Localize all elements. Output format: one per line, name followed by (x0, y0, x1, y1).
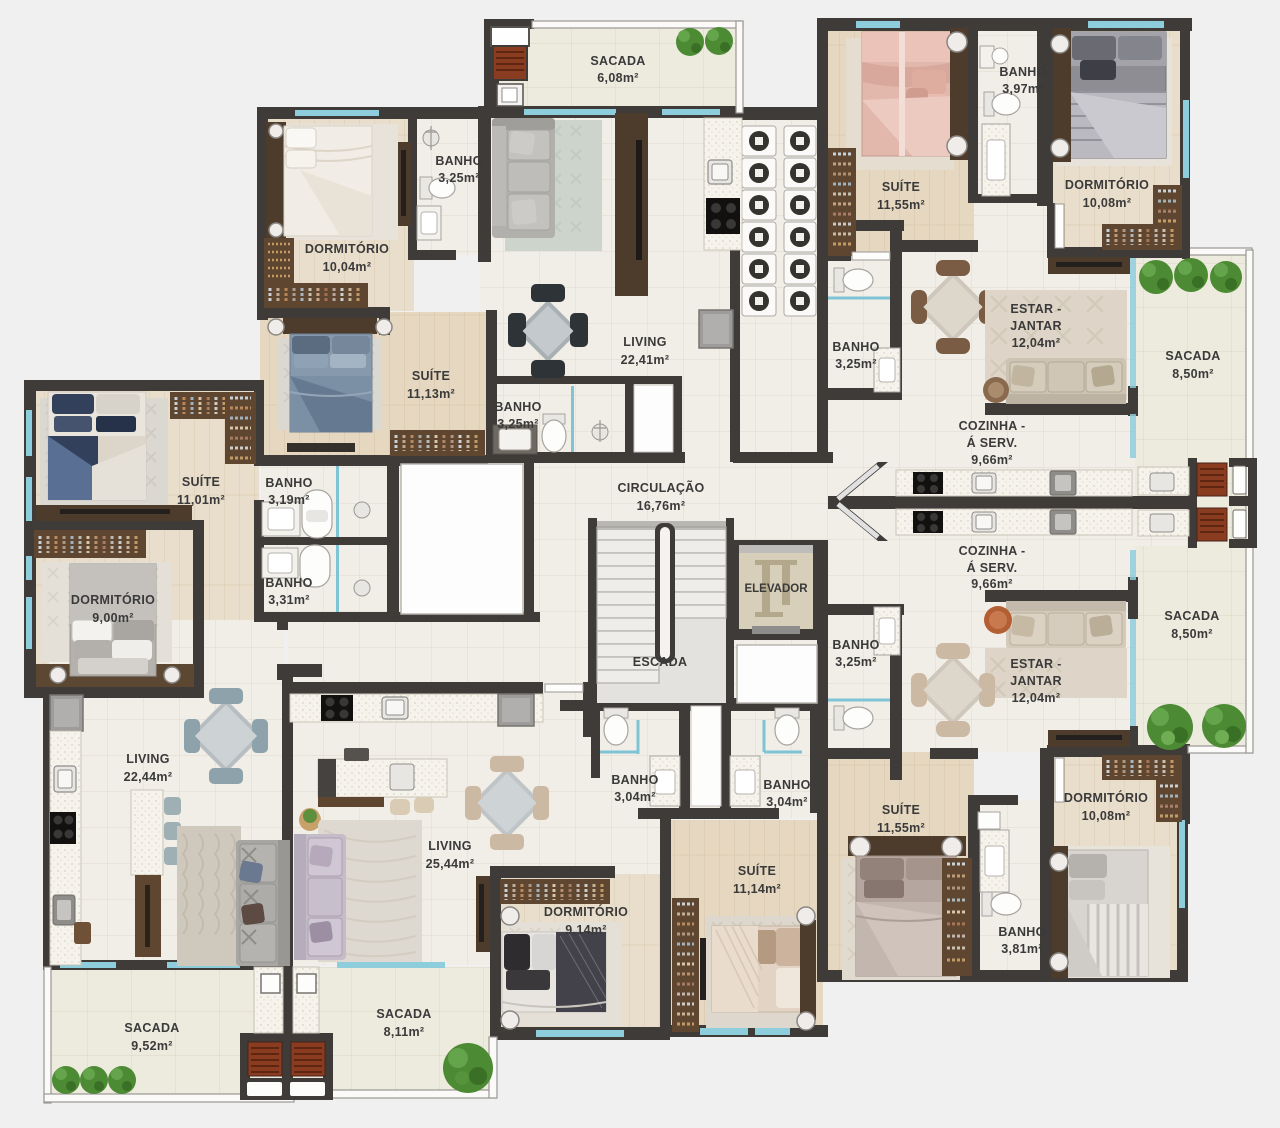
svg-text:SUÍTE: SUÍTE (412, 368, 450, 383)
svg-text:SACADA: SACADA (590, 54, 645, 68)
svg-text:ESTAR -: ESTAR - (1010, 302, 1061, 316)
svg-text:10,08m²: 10,08m² (1082, 809, 1131, 823)
svg-text:SACADA: SACADA (1164, 609, 1219, 623)
svg-text:10,04m²: 10,04m² (323, 260, 372, 274)
svg-text:3,25m²: 3,25m² (835, 655, 876, 669)
svg-text:8,50m²: 8,50m² (1171, 627, 1212, 641)
svg-text:Á SERV.: Á SERV. (967, 435, 1018, 450)
svg-text:DORMITÓRIO: DORMITÓRIO (71, 592, 155, 607)
svg-text:DORMITÓRIO: DORMITÓRIO (544, 904, 628, 919)
svg-text:SACADA: SACADA (1165, 349, 1220, 363)
svg-text:BANHO: BANHO (998, 925, 1045, 939)
svg-text:LIVING: LIVING (428, 839, 471, 853)
svg-text:9,66m²: 9,66m² (971, 577, 1012, 591)
svg-text:DORMITÓRIO: DORMITÓRIO (1065, 177, 1149, 192)
svg-text:11,55m²: 11,55m² (877, 821, 925, 835)
svg-text:SUÍTE: SUÍTE (882, 802, 920, 817)
svg-text:ESTAR -: ESTAR - (1010, 657, 1061, 671)
svg-text:3,31m²: 3,31m² (268, 593, 309, 607)
svg-text:COZINHA -: COZINHA - (959, 544, 1026, 558)
svg-text:ESCADA: ESCADA (633, 655, 688, 669)
svg-text:BANHO: BANHO (999, 65, 1046, 79)
svg-text:BANHO: BANHO (265, 576, 312, 590)
svg-text:BANHO: BANHO (832, 340, 879, 354)
svg-text:3,19m²: 3,19m² (268, 493, 309, 507)
svg-text:11,01m²: 11,01m² (177, 493, 225, 507)
svg-text:JANTAR: JANTAR (1010, 319, 1062, 333)
svg-text:BANHO: BANHO (265, 476, 312, 490)
svg-text:3,25m²: 3,25m² (438, 171, 479, 185)
svg-text:BANHO: BANHO (763, 778, 810, 792)
svg-text:12,04m²: 12,04m² (1012, 691, 1061, 705)
svg-text:ELEVADOR: ELEVADOR (744, 583, 808, 595)
svg-text:11,14m²: 11,14m² (733, 882, 781, 896)
svg-text:BANHO: BANHO (494, 400, 541, 414)
svg-text:DORMITÓRIO: DORMITÓRIO (1064, 790, 1148, 805)
svg-text:22,44m²: 22,44m² (124, 770, 173, 784)
svg-text:SACADA: SACADA (124, 1021, 179, 1035)
svg-text:3,25m²: 3,25m² (497, 417, 538, 431)
svg-text:LIVING: LIVING (623, 335, 666, 349)
svg-text:3,81m²: 3,81m² (1001, 942, 1042, 956)
svg-text:8,50m²: 8,50m² (1172, 367, 1213, 381)
svg-text:11,55m²: 11,55m² (877, 198, 925, 212)
svg-text:SUÍTE: SUÍTE (882, 179, 920, 194)
svg-text:8,11m²: 8,11m² (384, 1025, 425, 1039)
svg-text:SUÍTE: SUÍTE (182, 474, 220, 489)
svg-text:12,04m²: 12,04m² (1012, 336, 1061, 350)
svg-text:JANTAR: JANTAR (1010, 674, 1062, 688)
svg-text:9,14m²: 9,14m² (565, 923, 606, 937)
svg-text:3,97m²: 3,97m² (1002, 82, 1043, 96)
svg-text:SACADA: SACADA (376, 1007, 431, 1021)
svg-text:CIRCULAÇÃO: CIRCULAÇÃO (617, 480, 704, 495)
svg-text:9,00m²: 9,00m² (92, 611, 133, 625)
svg-text:BANHO: BANHO (611, 773, 658, 787)
svg-text:3,04m²: 3,04m² (614, 790, 655, 804)
svg-text:BANHO: BANHO (435, 154, 482, 168)
svg-text:3,25m²: 3,25m² (835, 357, 876, 371)
svg-text:9,52m²: 9,52m² (131, 1039, 172, 1053)
svg-text:9,66m²: 9,66m² (971, 453, 1012, 467)
svg-text:COZINHA -: COZINHA - (959, 419, 1026, 433)
svg-text:10,08m²: 10,08m² (1083, 196, 1132, 210)
svg-text:LIVING: LIVING (126, 752, 169, 766)
svg-text:3,04m²: 3,04m² (766, 795, 807, 809)
svg-text:16,76m²: 16,76m² (637, 499, 686, 513)
svg-text:11,13m²: 11,13m² (407, 387, 455, 401)
svg-text:BANHO: BANHO (832, 638, 879, 652)
svg-text:SUÍTE: SUÍTE (738, 863, 776, 878)
svg-text:DORMITÓRIO: DORMITÓRIO (305, 241, 389, 256)
svg-text:Á SERV.: Á SERV. (967, 560, 1018, 575)
svg-text:25,44m²: 25,44m² (426, 857, 475, 871)
svg-text:6,08m²: 6,08m² (597, 71, 638, 85)
svg-text:22,41m²: 22,41m² (621, 353, 670, 367)
